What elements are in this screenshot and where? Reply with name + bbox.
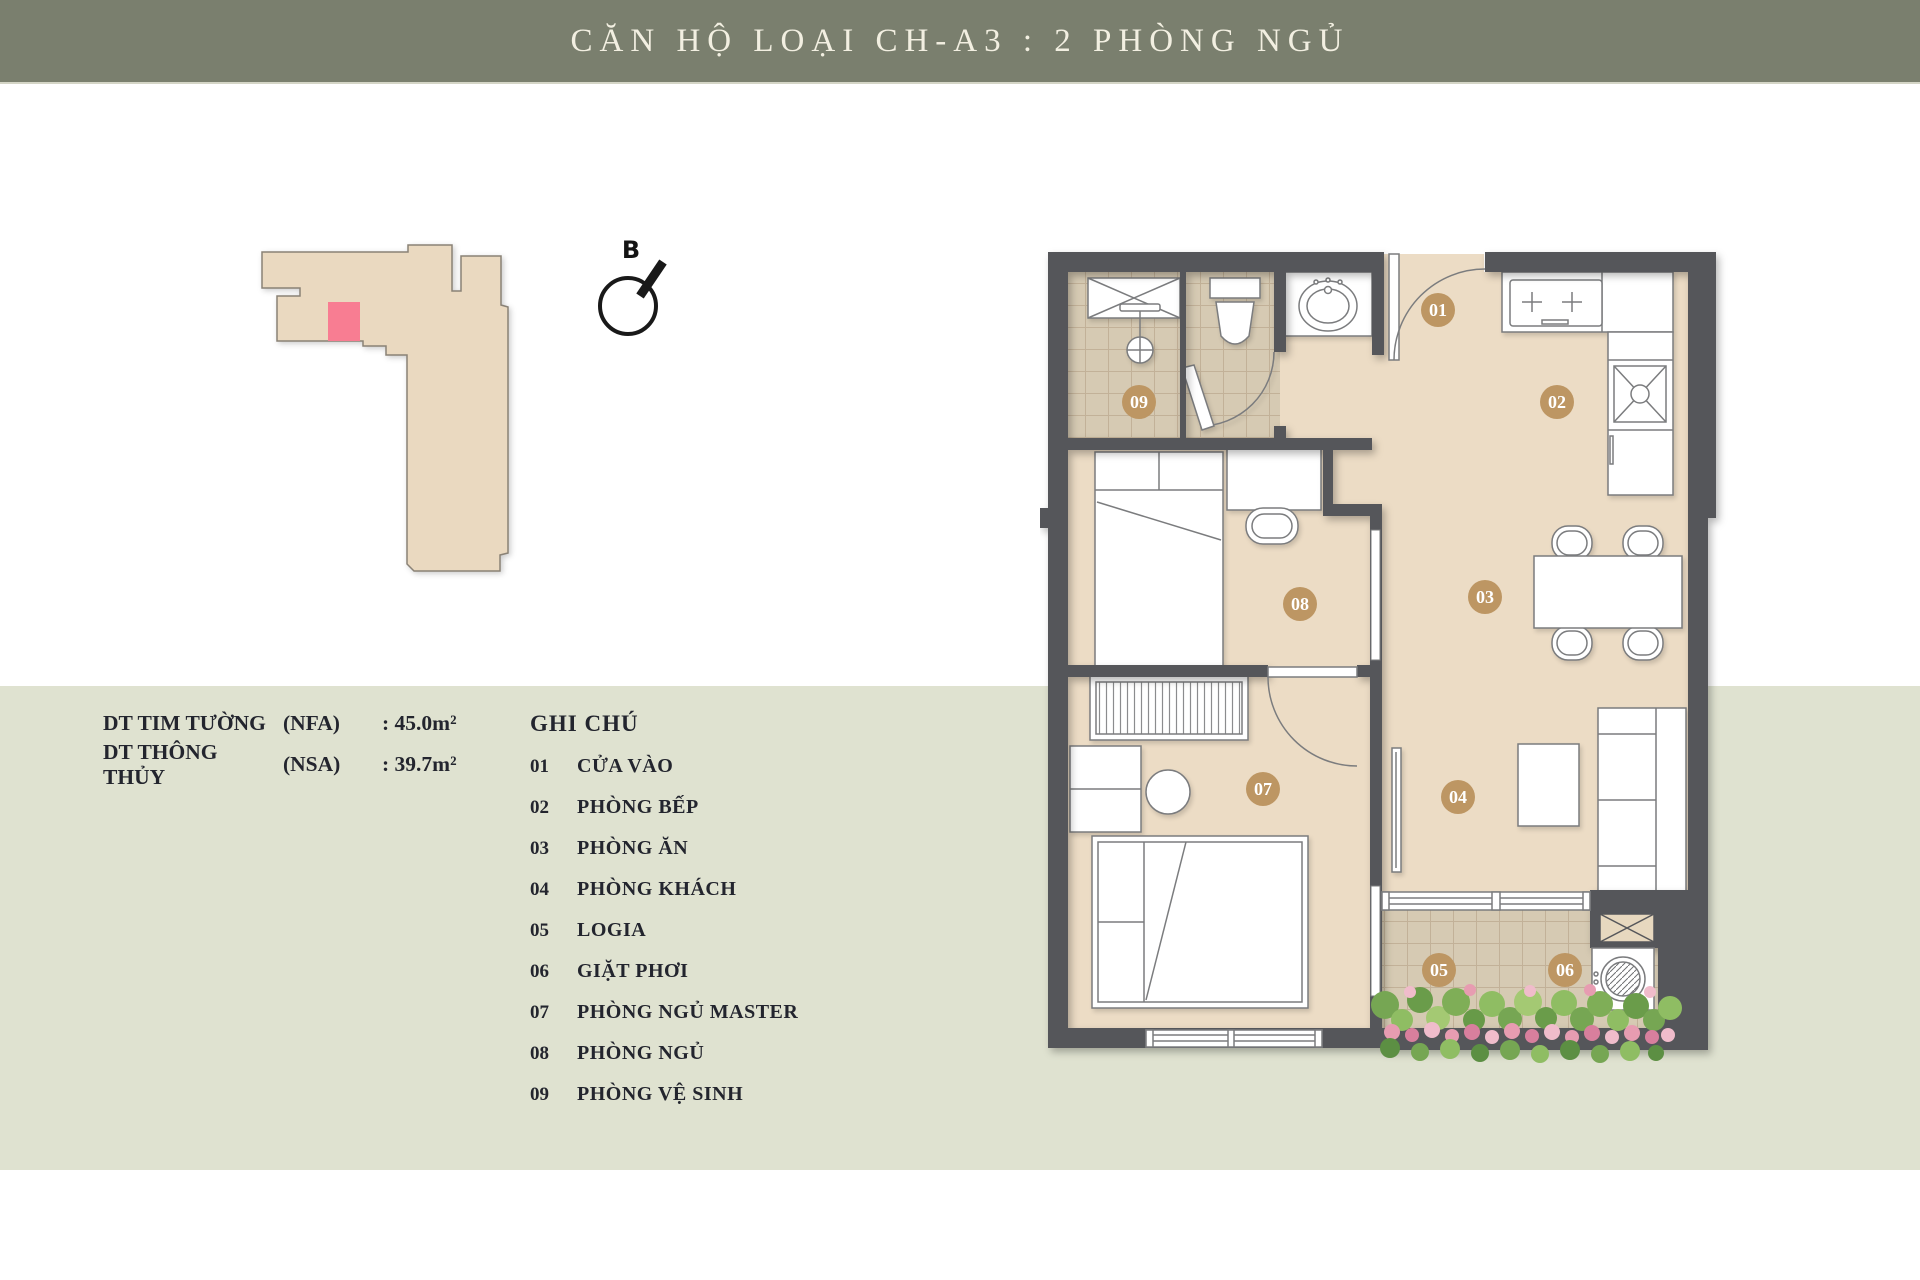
key-plan: B [250, 200, 680, 590]
legend-item: 05LOGIA [530, 910, 798, 951]
bedroom-sliding-door [1371, 530, 1380, 660]
legend-label: GIẶT PHƠI [577, 960, 688, 983]
highlighted-unit [328, 302, 360, 341]
legend-label: PHÒNG VỆ SINH [577, 1083, 743, 1106]
page-title: CĂN HỘ LOẠI CH-A3 : 2 PHÒNG NGỦ [571, 23, 1350, 60]
room-badge-02: 02 [1540, 385, 1574, 419]
master-bed-icon [1092, 836, 1308, 1008]
room-badge-09: 09 [1122, 385, 1156, 419]
coffee-table-icon [1518, 744, 1579, 826]
legend-item: 04PHÒNG KHÁCH [530, 869, 798, 910]
master-door-leaf [1268, 667, 1357, 677]
master-window-icon [1146, 1030, 1322, 1047]
legend-item: 06GIẶT PHƠI [530, 951, 798, 992]
kitchen-sink-icon [1614, 366, 1666, 422]
laundry-shelf-icon [1600, 914, 1654, 942]
legend-num: 09 [530, 1084, 577, 1106]
legend-label: LOGIA [577, 919, 646, 942]
svg-text:09: 09 [1130, 392, 1148, 412]
title-bar: CĂN HỘ LOẠI CH-A3 : 2 PHÒNG NGỦ [0, 0, 1920, 84]
living-sliding-panel [1371, 886, 1380, 996]
legend: GHI CHÚ 01CỬA VÀO 02PHÒNG BẾP 03PHÒNG ĂN… [530, 702, 798, 1115]
chair-icon [1623, 626, 1663, 660]
svg-text:08: 08 [1291, 594, 1309, 614]
closet-icon [1070, 746, 1141, 832]
tv-icon [1392, 748, 1401, 872]
bed-icon [1095, 452, 1223, 668]
area-value: : 39.7m² [382, 752, 457, 777]
svg-text:03: 03 [1476, 587, 1494, 607]
side-table-icon [1146, 770, 1190, 814]
area-code: (NSA) [283, 752, 382, 777]
legend-num: 04 [530, 879, 577, 901]
chair-icon [1552, 626, 1592, 660]
room-badge-06: 06 [1548, 953, 1582, 987]
legend-label: PHÒNG NGỦ [577, 1042, 704, 1065]
area-row-nsa: DT THÔNG THỦY (NSA) : 39.7m² [103, 744, 457, 785]
legend-num: 03 [530, 838, 577, 860]
svg-text:01: 01 [1429, 300, 1447, 320]
chair-icon [1552, 526, 1592, 560]
area-label: DT THÔNG THỦY [103, 740, 283, 790]
sofa-icon [1598, 708, 1686, 892]
area-row-nfa: DT TIM TƯỜNG (NFA) : 45.0m² [103, 703, 457, 744]
legend-item: 07PHÒNG NGỦ MASTER [530, 992, 798, 1033]
shower-tray-icon [1088, 278, 1180, 318]
room-badge-07: 07 [1246, 772, 1280, 806]
area-value: : 45.0m² [382, 711, 457, 736]
legend-num: 07 [530, 1002, 577, 1024]
svg-text:06: 06 [1556, 960, 1574, 980]
compass-label: B [622, 236, 640, 264]
area-label: DT TIM TƯỜNG [103, 711, 283, 736]
desk-icon [1227, 448, 1321, 510]
north-compass: B [600, 236, 663, 334]
legend-item: 03PHÒNG ĂN [530, 828, 798, 869]
room-badge-05: 05 [1422, 953, 1456, 987]
legend-num: 05 [530, 920, 577, 942]
building-outline [262, 245, 508, 571]
dining-table-icon [1534, 556, 1682, 628]
legend-label: PHÒNG KHÁCH [577, 878, 736, 901]
vanity-sink-icon [1285, 272, 1372, 336]
svg-text:05: 05 [1430, 960, 1448, 980]
legend-title: GHI CHÚ [530, 702, 798, 746]
legend-label: CỬA VÀO [577, 755, 673, 778]
stove-icon [1510, 280, 1602, 326]
svg-text:07: 07 [1254, 779, 1272, 799]
area-summary: DT TIM TƯỜNG (NFA) : 45.0m² DT THÔNG THỦ… [103, 703, 457, 785]
room-badge-04: 04 [1441, 780, 1475, 814]
legend-num: 01 [530, 756, 577, 778]
desk-chair-icon [1246, 508, 1298, 544]
legend-item: 01CỬA VÀO [530, 746, 798, 787]
legend-num: 06 [530, 961, 577, 983]
legend-label: PHÒNG NGỦ MASTER [577, 1001, 798, 1024]
legend-num: 08 [530, 1043, 577, 1065]
legend-label: PHÒNG BẾP [577, 796, 699, 819]
legend-item: 02PHÒNG BẾP [530, 787, 798, 828]
room-badge-08: 08 [1283, 587, 1317, 621]
floor-plan: 01 02 03 04 05 06 07 08 09 [1040, 240, 1740, 1110]
legend-label: PHÒNG ĂN [577, 837, 688, 860]
svg-text:02: 02 [1548, 392, 1566, 412]
legend-item: 08PHÒNG NGỦ [530, 1033, 798, 1074]
page: CĂN HỘ LOẠI CH-A3 : 2 PHÒNG NGỦ B DT TIM… [0, 0, 1920, 1280]
room-badge-03: 03 [1468, 580, 1502, 614]
legend-num: 02 [530, 797, 577, 819]
logia-window-icon [1382, 892, 1590, 910]
legend-item: 09PHÒNG VỆ SINH [530, 1074, 798, 1115]
svg-text:04: 04 [1449, 787, 1467, 807]
chair-icon [1623, 526, 1663, 560]
entry-door-leaf [1389, 254, 1399, 360]
wardrobe-icon [1090, 676, 1248, 740]
room-badge-01: 01 [1421, 293, 1455, 327]
area-code: (NFA) [283, 711, 382, 736]
